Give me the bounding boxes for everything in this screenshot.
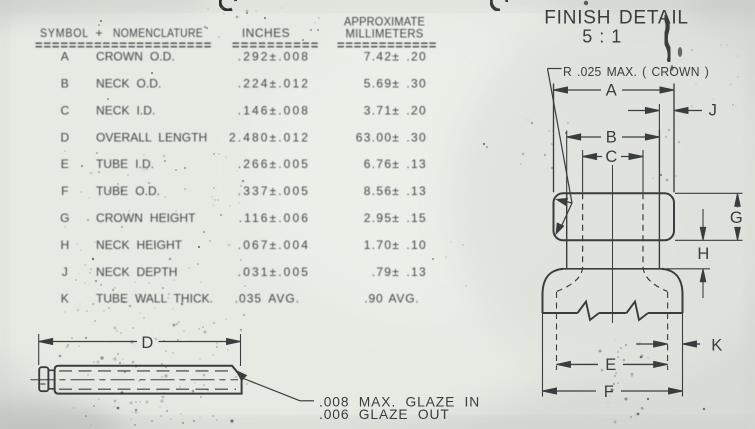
svg-text:J: J	[709, 102, 718, 120]
svg-text:.90 AVG.: .90 AVG.	[364, 292, 419, 306]
svg-text:FINISH DETAIL: FINISH DETAIL	[544, 8, 689, 29]
svg-text:B: B	[61, 77, 69, 91]
svg-text:NECK HEIGHT: NECK HEIGHT	[96, 238, 183, 252]
svg-text:2.480±.012: 2.480±.012	[229, 130, 310, 144]
svg-text:C: C	[605, 148, 617, 166]
svg-text:.224±.012: .224±.012	[238, 77, 310, 91]
svg-text:K: K	[61, 292, 69, 306]
svg-text:E: E	[61, 157, 69, 171]
svg-text:.035 AVG.: .035 AVG.	[235, 292, 300, 306]
svg-text:.031±.005: .031±.005	[238, 265, 310, 279]
svg-text:K: K	[711, 337, 722, 355]
svg-text:.067±.004: .067±.004	[238, 238, 310, 252]
svg-text:1.70± .10: 1.70± .10	[364, 238, 427, 252]
svg-text:E: E	[605, 356, 616, 374]
svg-text:8.56± .13: 8.56± .13	[364, 184, 427, 198]
svg-text:J: J	[62, 265, 68, 279]
svg-text:.146±.008: .146±.008	[238, 103, 310, 117]
svg-text:.79± .13: .79± .13	[372, 265, 427, 279]
svg-text:B: B	[606, 129, 617, 147]
svg-text:G: G	[60, 211, 70, 225]
svg-text:TUBE WALL THICK.: TUBE WALL THICK.	[96, 292, 213, 306]
svg-text:.266±.005: .266±.005	[238, 157, 310, 171]
svg-text:R .025 MAX. ( CROWN ): R .025 MAX. ( CROWN )	[563, 64, 709, 79]
svg-text:5 : 1: 5 : 1	[582, 27, 622, 47]
svg-text:63.00± .30: 63.00± .30	[356, 130, 427, 144]
svg-text:NECK O.D.: NECK O.D.	[96, 77, 161, 91]
svg-text:NECK DEPTH: NECK DEPTH	[96, 265, 177, 279]
svg-text:A: A	[606, 82, 617, 100]
svg-text:D: D	[141, 334, 153, 352]
svg-text:2.95± .15: 2.95± .15	[364, 211, 427, 225]
svg-text:CROWN O.D.: CROWN O.D.	[96, 50, 175, 64]
svg-text:3.71± .20: 3.71± .20	[364, 103, 427, 117]
svg-text:F: F	[61, 184, 69, 198]
svg-text:G: G	[730, 209, 743, 227]
svg-text:6.76± .13: 6.76± .13	[364, 157, 427, 171]
svg-text:H: H	[697, 245, 709, 263]
svg-text:D: D	[60, 130, 69, 144]
svg-text:.292±.008: .292±.008	[238, 50, 310, 64]
svg-text:F: F	[604, 383, 614, 401]
svg-text:OVERALL LENGTH: OVERALL LENGTH	[96, 130, 207, 144]
svg-text:A: A	[61, 50, 69, 64]
svg-text:.116±.006: .116±.006	[239, 211, 310, 225]
svg-text:7.42± .20: 7.42± .20	[364, 50, 427, 64]
svg-text:C: C	[60, 103, 69, 117]
svg-text:TUBE I.D.: TUBE I.D.	[96, 157, 154, 171]
svg-text:.006 GLAZE OUT: .006 GLAZE OUT	[319, 407, 450, 422]
svg-text:5.69± .30: 5.69± .30	[364, 77, 427, 91]
svg-text:TUBE O.D.: TUBE O.D.	[96, 184, 160, 198]
svg-text:.337±.005: .337±.005	[238, 184, 310, 198]
svg-text:H: H	[60, 238, 69, 252]
svg-text:NECK I.D.: NECK I.D.	[96, 103, 155, 117]
svg-text:CROWN HEIGHT: CROWN HEIGHT	[96, 211, 196, 225]
